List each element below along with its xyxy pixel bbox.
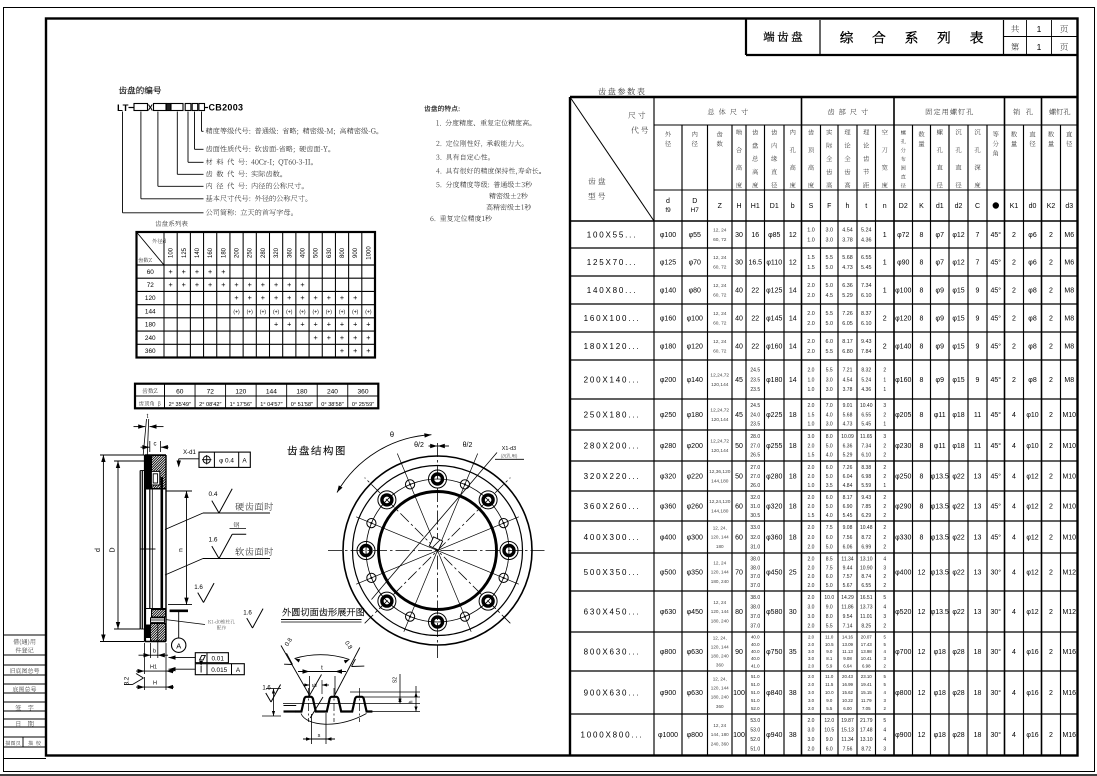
svg-text:9.0: 9.0 xyxy=(826,737,833,743)
svg-text:12: 12 xyxy=(789,232,797,239)
svg-text:φ22: φ22 xyxy=(952,609,964,616)
svg-text:φ200: φ200 xyxy=(687,443,703,450)
svg-text:Z: Z xyxy=(718,203,723,210)
svg-text:φ580: φ580 xyxy=(766,609,782,616)
svg-text:4: 4 xyxy=(1012,412,1016,419)
svg-text:X-d1: X-d1 xyxy=(183,450,196,456)
svg-text:2: 2 xyxy=(883,624,886,630)
svg-text:+: + xyxy=(195,280,199,289)
svg-text:13.09: 13.09 xyxy=(842,642,854,647)
svg-text:7.57: 7.57 xyxy=(843,574,853,580)
svg-text:10.5: 10.5 xyxy=(825,642,834,647)
svg-text:11.0: 11.0 xyxy=(825,635,834,640)
svg-text:φ8: φ8 xyxy=(1028,288,1037,295)
svg-text:14.16: 14.16 xyxy=(842,635,854,640)
svg-text:D: D xyxy=(110,547,117,552)
svg-text:+: + xyxy=(168,267,172,276)
svg-text:3.0: 3.0 xyxy=(808,690,815,695)
svg-text:30: 30 xyxy=(735,260,743,267)
svg-text:8.32: 8.32 xyxy=(861,368,871,374)
svg-text:φ22: φ22 xyxy=(952,474,964,481)
svg-text:+: + xyxy=(195,267,199,276)
svg-text:φ18: φ18 xyxy=(934,732,946,739)
svg-text:180, 240: 180, 240 xyxy=(711,695,729,700)
svg-text:0.4: 0.4 xyxy=(208,491,217,498)
svg-text:53.0: 53.0 xyxy=(750,718,760,724)
svg-text:+: + xyxy=(287,320,291,329)
svg-text:φ22: φ22 xyxy=(952,504,964,511)
svg-text:1.5: 1.5 xyxy=(808,513,815,519)
svg-text:1: 1 xyxy=(883,483,886,489)
svg-text:2: 2 xyxy=(1049,690,1053,697)
svg-text:F: F xyxy=(827,203,831,210)
svg-text:38: 38 xyxy=(789,732,797,739)
svg-text:10.0: 10.0 xyxy=(825,690,834,695)
svg-text:8.25: 8.25 xyxy=(861,624,871,630)
svg-text:7.85: 7.85 xyxy=(861,504,871,510)
svg-text:16: 16 xyxy=(751,232,759,239)
svg-text:φ8: φ8 xyxy=(1028,377,1037,384)
svg-text:1.6: 1.6 xyxy=(194,584,203,591)
svg-text:9.44: 9.44 xyxy=(843,565,853,571)
svg-text:1.0: 1.0 xyxy=(807,237,815,243)
svg-text:6.0: 6.0 xyxy=(826,747,833,753)
svg-text:140X80...: 140X80... xyxy=(587,286,637,295)
svg-text:17.43: 17.43 xyxy=(861,642,873,647)
svg-text:8.5: 8.5 xyxy=(826,557,833,563)
svg-text:2.0: 2.0 xyxy=(808,718,815,724)
svg-text:(+): (+) xyxy=(286,309,293,315)
svg-text:27.0: 27.0 xyxy=(750,474,760,480)
svg-text:φ630: φ630 xyxy=(660,609,676,616)
svg-text:X1-d3: X1-d3 xyxy=(502,446,516,452)
svg-text:14: 14 xyxy=(789,316,797,323)
svg-text:630X450...: 630X450... xyxy=(584,608,641,617)
svg-text:4: 4 xyxy=(883,737,886,743)
svg-text:30°: 30° xyxy=(990,608,1001,616)
svg-text:144,180: 144,180 xyxy=(711,478,729,484)
svg-text:+: + xyxy=(182,280,186,289)
svg-text:360X260...: 360X260... xyxy=(584,502,641,511)
svg-text:30.5: 30.5 xyxy=(750,513,760,519)
svg-text:37.0: 37.0 xyxy=(750,614,760,620)
svg-text:2.0: 2.0 xyxy=(807,339,815,345)
svg-text:14: 14 xyxy=(789,344,797,351)
svg-text:4: 4 xyxy=(1012,504,1016,511)
svg-text:1.0: 1.0 xyxy=(808,422,815,428)
svg-text:4: 4 xyxy=(1012,732,1016,739)
svg-text:10.22: 10.22 xyxy=(842,698,854,703)
svg-text:24.5: 24.5 xyxy=(750,368,760,374)
svg-text:51.0: 51.0 xyxy=(751,698,760,703)
svg-text:11.34: 11.34 xyxy=(841,557,853,563)
svg-text:M10: M10 xyxy=(1062,443,1076,450)
svg-text:18: 18 xyxy=(789,412,797,419)
svg-text:8: 8 xyxy=(920,316,924,323)
svg-text:2: 2 xyxy=(1049,649,1053,656)
svg-text:140: 140 xyxy=(195,247,201,258)
svg-text:13: 13 xyxy=(974,504,982,511)
svg-text:30°: 30° xyxy=(990,689,1001,697)
svg-text:5.0: 5.0 xyxy=(826,265,834,271)
svg-text:φ16: φ16 xyxy=(1026,732,1038,739)
svg-text:45°: 45° xyxy=(990,534,1001,542)
svg-text:10.90: 10.90 xyxy=(860,565,873,571)
svg-text:+: + xyxy=(234,280,238,289)
svg-text:6.0: 6.0 xyxy=(826,535,833,541)
svg-text:2.0: 2.0 xyxy=(808,663,815,668)
svg-text:2: 2 xyxy=(883,443,886,449)
svg-text:9: 9 xyxy=(976,344,980,351)
svg-text:2.0: 2.0 xyxy=(808,544,815,550)
svg-text:(+): (+) xyxy=(273,309,280,315)
svg-text:6.64: 6.64 xyxy=(843,663,852,668)
svg-text:22: 22 xyxy=(751,344,759,351)
svg-text:60, 72: 60, 72 xyxy=(713,264,727,270)
svg-text:60: 60 xyxy=(176,389,184,396)
svg-text:2: 2 xyxy=(883,544,886,550)
svg-text:φ 0.4: φ 0.4 xyxy=(219,457,234,464)
svg-text:180: 180 xyxy=(145,322,156,329)
svg-text:17.48: 17.48 xyxy=(860,728,873,734)
svg-text:45°: 45° xyxy=(990,411,1001,419)
svg-text:3.0: 3.0 xyxy=(808,656,815,661)
svg-text:38: 38 xyxy=(789,690,797,697)
svg-text:H7: H7 xyxy=(691,207,700,214)
svg-text:2: 2 xyxy=(1012,377,1016,384)
svg-text:45: 45 xyxy=(735,377,743,384)
svg-text:+: + xyxy=(208,280,212,289)
svg-text:2° 35′49″: 2° 35′49″ xyxy=(169,402,191,408)
svg-text:1: 1 xyxy=(883,232,887,239)
svg-text:144, 180: 144, 180 xyxy=(711,732,729,737)
svg-text:5.5: 5.5 xyxy=(826,311,834,317)
svg-text:18: 18 xyxy=(974,690,982,697)
svg-text:8: 8 xyxy=(920,504,924,511)
svg-text:6.10: 6.10 xyxy=(861,453,871,459)
svg-text:53.0: 53.0 xyxy=(750,728,760,734)
svg-text:2: 2 xyxy=(883,368,886,374)
svg-text:5.5: 5.5 xyxy=(826,624,833,630)
svg-text:+: + xyxy=(221,267,225,276)
svg-text:72: 72 xyxy=(147,282,155,289)
svg-text:(+): (+) xyxy=(365,309,372,315)
svg-text:18: 18 xyxy=(789,474,797,481)
svg-text:360: 360 xyxy=(716,663,724,668)
svg-text:8.38: 8.38 xyxy=(861,465,871,471)
svg-text:4.0: 4.0 xyxy=(826,412,833,418)
svg-text:φ120: φ120 xyxy=(687,344,703,351)
svg-text:30°: 30° xyxy=(990,648,1001,656)
svg-text:θ/2: θ/2 xyxy=(463,442,473,449)
svg-text:φ12: φ12 xyxy=(952,232,964,239)
svg-text:5.29: 5.29 xyxy=(843,453,853,459)
svg-text:125X70...: 125X70... xyxy=(587,258,637,267)
svg-text:12, 24: 12, 24 xyxy=(713,339,727,345)
svg-text:X: X xyxy=(148,104,154,113)
svg-text:280X200...: 280X200... xyxy=(584,442,641,451)
svg-text:360: 360 xyxy=(358,389,369,396)
svg-text:2: 2 xyxy=(1049,260,1053,267)
svg-text:41.0: 41.0 xyxy=(751,663,760,668)
svg-text:12, 24: 12, 24 xyxy=(713,255,727,261)
svg-text:13: 13 xyxy=(974,570,982,577)
svg-text:b: b xyxy=(153,649,156,655)
svg-text:φ255: φ255 xyxy=(766,443,782,450)
svg-text:180X120...: 180X120... xyxy=(584,342,641,351)
svg-text:33.0: 33.0 xyxy=(750,525,760,531)
svg-text:M8: M8 xyxy=(1064,288,1074,295)
svg-text:2.0: 2.0 xyxy=(808,504,815,510)
svg-text:3.0: 3.0 xyxy=(808,649,815,654)
svg-text:9: 9 xyxy=(976,288,980,295)
svg-text:H1: H1 xyxy=(751,203,760,210)
svg-text:72: 72 xyxy=(207,389,215,396)
svg-text:4.54: 4.54 xyxy=(842,227,853,233)
svg-text:12, 24: 12, 24 xyxy=(713,227,727,233)
svg-text:8: 8 xyxy=(920,232,924,239)
svg-text:12,24,72: 12,24,72 xyxy=(710,372,729,378)
svg-text:φ300: φ300 xyxy=(687,535,703,542)
svg-text:15.15: 15.15 xyxy=(861,690,873,695)
svg-text:2.0: 2.0 xyxy=(807,283,815,289)
svg-text:+: + xyxy=(327,333,331,342)
svg-text:φ9: φ9 xyxy=(936,288,945,295)
svg-text:h: h xyxy=(846,203,850,210)
svg-text:11.0: 11.0 xyxy=(825,674,834,679)
svg-text:180: 180 xyxy=(221,247,227,258)
svg-text:6.10: 6.10 xyxy=(861,321,872,327)
svg-text:13.10: 13.10 xyxy=(860,737,873,743)
svg-text:6.04: 6.04 xyxy=(843,474,853,480)
svg-text:φ100: φ100 xyxy=(687,316,703,323)
svg-text:8: 8 xyxy=(920,443,924,450)
svg-text:φ15: φ15 xyxy=(952,377,964,384)
svg-text:M10: M10 xyxy=(1062,504,1076,511)
svg-text:1° 17′56″: 1° 17′56″ xyxy=(230,402,252,408)
svg-text:40.0: 40.0 xyxy=(751,635,760,640)
svg-text:19.87: 19.87 xyxy=(841,718,854,724)
svg-text:16.5: 16.5 xyxy=(748,260,762,267)
svg-text:φ320: φ320 xyxy=(660,474,676,481)
svg-text:φ280: φ280 xyxy=(766,474,782,481)
svg-text:2: 2 xyxy=(1012,316,1016,323)
svg-text:+: + xyxy=(168,280,172,289)
svg-text:6.36: 6.36 xyxy=(843,443,853,449)
svg-text:φ400: φ400 xyxy=(895,570,911,577)
svg-text:800: 800 xyxy=(340,247,346,258)
svg-text:12.0: 12.0 xyxy=(824,718,834,724)
svg-text:120, 144: 120, 144 xyxy=(711,609,729,614)
svg-text:800X630...: 800X630... xyxy=(584,648,641,657)
svg-text:144: 144 xyxy=(266,389,277,396)
svg-text:3.0: 3.0 xyxy=(808,614,815,620)
svg-text:23.5: 23.5 xyxy=(750,422,760,428)
svg-text:2: 2 xyxy=(1049,504,1053,511)
svg-text:51.0: 51.0 xyxy=(751,682,760,687)
svg-text:7.84: 7.84 xyxy=(861,349,872,355)
svg-text:φ22: φ22 xyxy=(952,535,964,542)
svg-text:φ250: φ250 xyxy=(660,412,676,419)
svg-text:45°: 45° xyxy=(990,343,1001,351)
svg-text:C: C xyxy=(975,203,980,210)
svg-text:φ100: φ100 xyxy=(660,232,676,239)
svg-text:φ13.5: φ13.5 xyxy=(931,474,949,481)
svg-text:φ160: φ160 xyxy=(766,344,782,351)
svg-text:φ6: φ6 xyxy=(1028,260,1037,267)
svg-text:(+): (+) xyxy=(339,309,346,315)
svg-text:h: h xyxy=(409,700,415,703)
svg-text:3.0: 3.0 xyxy=(808,605,815,611)
svg-text:+: + xyxy=(287,293,291,302)
svg-text:250: 250 xyxy=(248,247,254,258)
svg-text:50: 50 xyxy=(735,474,743,481)
svg-text:2.0: 2.0 xyxy=(808,465,815,471)
svg-text:φ28: φ28 xyxy=(952,649,964,656)
svg-text:37.0: 37.0 xyxy=(750,624,760,630)
svg-text:19.41: 19.41 xyxy=(861,682,873,687)
svg-text:6.55: 6.55 xyxy=(861,412,871,418)
svg-text:12: 12 xyxy=(918,609,926,616)
svg-text:25: 25 xyxy=(789,570,797,577)
svg-text:45: 45 xyxy=(735,412,743,419)
svg-text:1000: 1000 xyxy=(366,246,372,260)
svg-text:+: + xyxy=(261,280,265,289)
svg-text:φ225: φ225 xyxy=(766,412,782,419)
svg-text:0° 25′59″: 0° 25′59″ xyxy=(352,402,374,408)
svg-text:M16: M16 xyxy=(1062,732,1076,739)
svg-text:18: 18 xyxy=(974,732,982,739)
svg-text:φ900: φ900 xyxy=(895,732,911,739)
svg-text:2.0: 2.0 xyxy=(808,674,815,679)
svg-text:φ750: φ750 xyxy=(766,649,782,656)
svg-text:3.0: 3.0 xyxy=(826,237,834,243)
svg-text:CB2003: CB2003 xyxy=(209,103,244,113)
svg-text:φ12: φ12 xyxy=(1026,474,1038,481)
svg-text:2: 2 xyxy=(883,504,886,510)
svg-text:θ/2: θ/2 xyxy=(414,442,424,449)
svg-text:60, 72: 60, 72 xyxy=(713,320,727,326)
svg-text:12: 12 xyxy=(918,570,926,577)
svg-text:M16: M16 xyxy=(1062,649,1076,656)
svg-text:φ12: φ12 xyxy=(1026,609,1038,616)
svg-text:9.43: 9.43 xyxy=(861,339,872,345)
svg-text:φ160: φ160 xyxy=(660,316,676,323)
svg-text:8: 8 xyxy=(920,474,924,481)
svg-text:10.40: 10.40 xyxy=(860,403,873,409)
svg-text:5.45: 5.45 xyxy=(861,422,871,428)
svg-text:23.5: 23.5 xyxy=(750,377,760,383)
svg-text:φ350: φ350 xyxy=(687,570,703,577)
svg-text:M10: M10 xyxy=(1062,535,1076,542)
svg-text:φ330: φ330 xyxy=(895,535,911,542)
svg-text:1.6: 1.6 xyxy=(243,610,252,617)
svg-text:200: 200 xyxy=(235,247,241,258)
svg-text:320: 320 xyxy=(274,247,280,258)
svg-text:3.0: 3.0 xyxy=(826,227,834,233)
svg-text:11.65: 11.65 xyxy=(860,434,872,440)
svg-text:500: 500 xyxy=(314,247,320,258)
svg-text:400X300...: 400X300... xyxy=(584,533,641,542)
svg-text:+: + xyxy=(366,333,370,342)
svg-text:13.98: 13.98 xyxy=(861,649,873,654)
svg-text:125: 125 xyxy=(182,247,188,258)
svg-text:3: 3 xyxy=(883,614,886,620)
svg-text:φ15: φ15 xyxy=(952,344,964,351)
svg-text:1° 04′57″: 1° 04′57″ xyxy=(260,402,282,408)
svg-text:φ13.5: φ13.5 xyxy=(931,570,949,577)
svg-text:φ180: φ180 xyxy=(687,412,703,419)
svg-text:6.99: 6.99 xyxy=(861,544,871,550)
svg-text:1.0: 1.0 xyxy=(808,387,815,393)
svg-text:3: 3 xyxy=(883,747,886,753)
svg-text:21.79: 21.79 xyxy=(860,718,873,724)
svg-text:6.06: 6.06 xyxy=(843,544,853,550)
svg-text:12,36,120: 12,36,120 xyxy=(709,469,731,475)
svg-text:30°: 30° xyxy=(990,569,1001,577)
svg-text:1.0: 1.0 xyxy=(808,483,815,489)
svg-text:+: + xyxy=(314,293,318,302)
svg-text:4.73: 4.73 xyxy=(842,265,853,271)
svg-text:φ90: φ90 xyxy=(897,260,909,267)
svg-text:(+): (+) xyxy=(299,309,306,315)
svg-text:12, 24,: 12, 24, xyxy=(713,636,727,641)
svg-text:8: 8 xyxy=(920,535,924,542)
svg-text:1000X800...: 1000X800... xyxy=(581,731,644,740)
svg-text:φ220: φ220 xyxy=(687,474,703,481)
svg-text:A: A xyxy=(236,667,241,674)
svg-text:4.5: 4.5 xyxy=(826,293,834,299)
svg-text:15.13: 15.13 xyxy=(841,728,854,734)
svg-text:6.05: 6.05 xyxy=(842,321,853,327)
svg-text:40: 40 xyxy=(735,344,743,351)
svg-text:(+): (+) xyxy=(352,309,359,315)
svg-text:1.5: 1.5 xyxy=(807,255,815,261)
svg-text:1.0: 1.0 xyxy=(808,377,815,383)
svg-text:6.0: 6.0 xyxy=(826,465,833,471)
svg-text:φ290: φ290 xyxy=(895,504,911,511)
svg-text:φ500: φ500 xyxy=(660,570,676,577)
svg-text:5.24: 5.24 xyxy=(861,377,871,383)
svg-text:7.56: 7.56 xyxy=(843,535,853,541)
svg-text:180: 180 xyxy=(716,544,724,549)
svg-text:4: 4 xyxy=(883,728,886,734)
svg-text:240: 240 xyxy=(327,389,338,396)
svg-text:2.0: 2.0 xyxy=(807,349,815,355)
svg-text:b: b xyxy=(791,203,795,210)
svg-text:0° 51′58″: 0° 51′58″ xyxy=(291,402,313,408)
svg-text:360: 360 xyxy=(716,704,724,709)
svg-text:3.0: 3.0 xyxy=(808,698,815,703)
svg-text:320X220...: 320X220... xyxy=(584,472,641,481)
svg-text:D2: D2 xyxy=(899,203,908,210)
svg-text:7.5: 7.5 xyxy=(826,525,833,531)
svg-text:φ12: φ12 xyxy=(1026,535,1038,542)
svg-text:H1: H1 xyxy=(150,665,157,671)
svg-text:5.0: 5.0 xyxy=(826,544,833,550)
svg-text:1.0: 1.0 xyxy=(807,227,815,233)
svg-text:7.26: 7.26 xyxy=(842,311,853,317)
svg-text:5.59: 5.59 xyxy=(861,483,871,489)
svg-text:5: 5 xyxy=(883,718,886,724)
svg-text:5.68: 5.68 xyxy=(842,255,853,261)
svg-text:φ630: φ630 xyxy=(687,690,703,697)
svg-text:11.01: 11.01 xyxy=(860,614,872,620)
svg-text:1: 1 xyxy=(883,387,886,393)
svg-text:3.2: 3.2 xyxy=(125,676,131,685)
svg-text:φ13.5: φ13.5 xyxy=(931,609,949,616)
svg-text:13: 13 xyxy=(974,609,982,616)
